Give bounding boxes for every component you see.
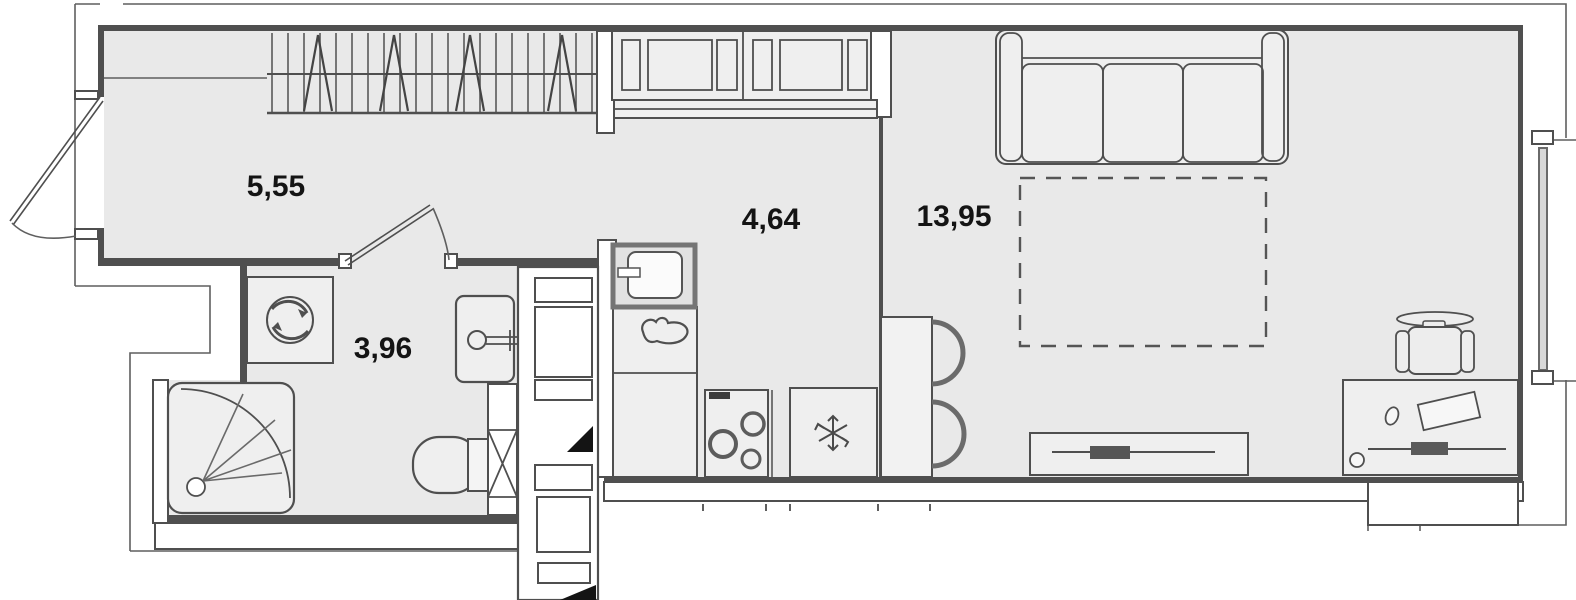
contour-bottom-center — [604, 501, 1368, 531]
sink-faucet — [468, 331, 486, 349]
office-chair — [1396, 312, 1474, 374]
bath-door-jamb-right — [445, 254, 457, 268]
bottom-right-wall-band — [1368, 482, 1518, 525]
kitchen-faucet-mount — [618, 268, 640, 277]
bathroom-top-wall-right — [445, 258, 600, 266]
window-sill-top — [1532, 131, 1553, 144]
shaft-box — [537, 497, 590, 552]
sofa — [996, 30, 1288, 164]
kitchen-sink-unit — [613, 245, 697, 477]
entrance-jamb-top — [75, 91, 98, 99]
bathroom-left-wall — [153, 380, 168, 523]
tv-stand — [1030, 433, 1248, 475]
floor-plan: 5,55 4,64 13,95 3,96 — [0, 0, 1576, 600]
tv-icon — [1090, 446, 1130, 459]
cup-icon — [1350, 453, 1364, 467]
chair-seat — [1408, 327, 1462, 374]
shaft-box — [535, 307, 592, 377]
stove-label-mark — [709, 392, 730, 399]
kitchen-wall-cabinets — [612, 31, 877, 118]
washer-body — [247, 277, 333, 363]
bathroom-top-wall-left — [98, 258, 348, 266]
fridge — [790, 388, 877, 477]
left-wall-upper — [98, 25, 104, 97]
chair-armrest — [1396, 331, 1409, 372]
floor-plan-canvas: 5,55 4,64 13,95 3,96 — [0, 0, 1576, 600]
tv-stand-body — [1030, 433, 1248, 475]
chair-armrest — [1461, 331, 1474, 372]
area-label-living-room: 13,95 — [916, 200, 991, 233]
area-label-kitchen: 4,64 — [742, 203, 801, 236]
bathroom-bottom-band — [155, 523, 518, 549]
area-label-bathroom: 3,96 — [354, 332, 412, 365]
plumbing-duct — [488, 384, 517, 515]
shower-drain — [187, 478, 205, 496]
shower-tray — [168, 383, 294, 513]
shaft-box — [535, 380, 592, 400]
entrance-jamb-bottom — [75, 229, 98, 239]
bathroom-sink — [456, 296, 518, 382]
sofa-outline — [996, 30, 1288, 164]
window-sill-bottom — [1532, 371, 1553, 384]
area-label-hallway: 5,55 — [247, 170, 305, 203]
shaft-box — [535, 465, 592, 490]
ventilation-shaft — [518, 267, 598, 600]
shower — [168, 383, 294, 513]
bathroom-bottom-inner-edge — [155, 515, 518, 523]
bar-table — [881, 317, 932, 477]
desk — [1343, 380, 1518, 475]
bathroom-door-gap-floor — [350, 255, 445, 272]
niche-wall — [240, 258, 247, 382]
desk-monitor-icon — [1411, 442, 1448, 455]
window-glazing — [1539, 148, 1547, 370]
shaft-box — [538, 563, 590, 583]
washing-machine — [247, 277, 333, 363]
entrance-door — [10, 97, 103, 238]
entrance-door-leaf — [10, 97, 103, 225]
sink-cabinet — [613, 307, 697, 477]
dimension-ticks — [703, 504, 930, 511]
entrance-door-swing-arc — [12, 223, 76, 238]
shaft-box — [535, 278, 592, 302]
window — [1532, 131, 1553, 384]
